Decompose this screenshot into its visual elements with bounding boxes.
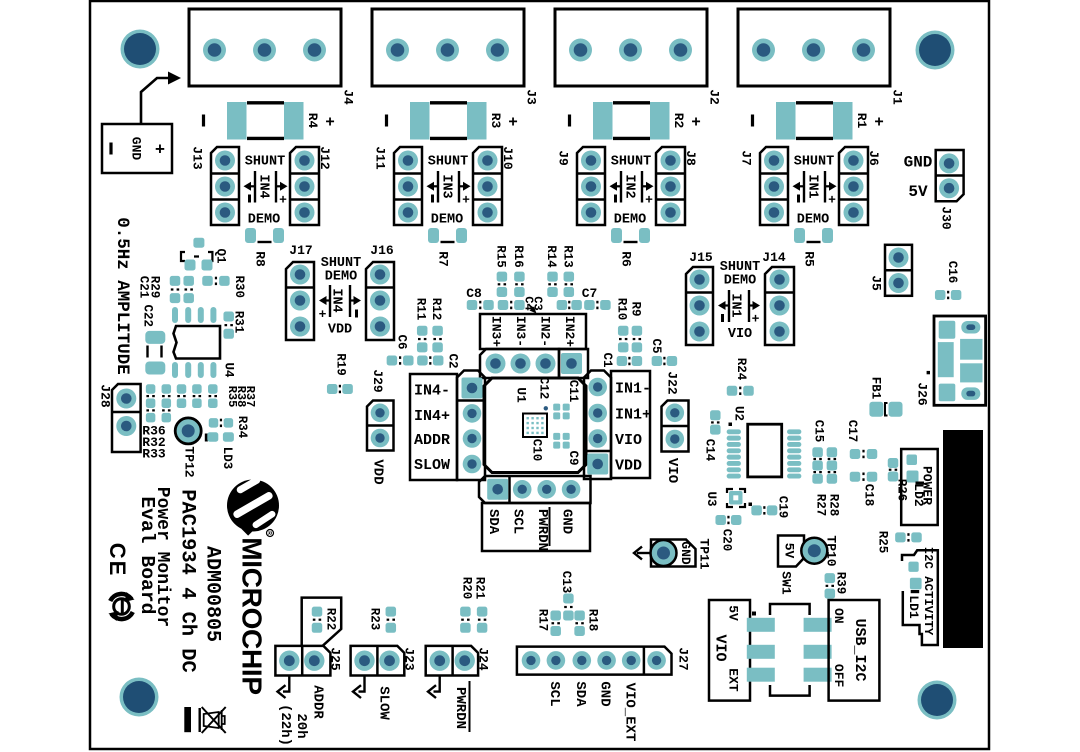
svg-text:C5: C5	[649, 338, 663, 353]
svg-text:ADDR: ADDR	[414, 432, 450, 449]
svg-text:LD2: LD2	[911, 483, 926, 507]
svg-text:SHUNT: SHUNT	[794, 154, 835, 169]
svg-text:U4: U4	[222, 362, 236, 378]
svg-text:C9: C9	[566, 450, 580, 465]
svg-text:C14: C14	[703, 439, 717, 462]
svg-text:VIO: VIO	[615, 432, 642, 449]
svg-text:J13: J13	[189, 146, 204, 170]
svg-text:R25: R25	[876, 531, 890, 554]
svg-text:J11: J11	[372, 146, 387, 170]
svg-text:J8: J8	[683, 150, 698, 166]
svg-text:+: +	[828, 193, 836, 208]
svg-text:VDD: VDD	[615, 457, 642, 474]
svg-text:J12: J12	[317, 146, 332, 170]
svg-text:0.5Hz AMPLITUDE: 0.5Hz AMPLITUDE	[112, 217, 132, 375]
svg-text:R13: R13	[560, 245, 574, 268]
svg-text:R10: R10	[615, 298, 629, 321]
svg-text:R19: R19	[333, 353, 347, 376]
svg-text:CE: CE	[105, 543, 130, 578]
svg-text:C18: C18	[862, 484, 876, 507]
svg-text:R31: R31	[232, 311, 246, 334]
svg-text:GND: GND	[128, 137, 143, 161]
svg-text:GND: GND	[558, 509, 574, 534]
svg-text:IN4-: IN4-	[414, 382, 450, 399]
svg-text:PWRDN: PWRDN	[534, 509, 550, 551]
svg-text:J26: J26	[915, 382, 930, 406]
svg-text:20h: 20h	[293, 713, 309, 738]
svg-text:SLOW: SLOW	[375, 686, 391, 720]
svg-text:C12: C12	[537, 377, 551, 400]
svg-text:VIO: VIO	[712, 634, 729, 661]
svg-text:(22h): (22h)	[277, 704, 293, 746]
svg-text:OFF: OFF	[831, 664, 846, 688]
svg-text:DEMO: DEMO	[431, 212, 463, 227]
svg-text:+: +	[462, 193, 470, 208]
svg-text:+: +	[645, 193, 653, 208]
svg-text:FB1: FB1	[869, 377, 883, 400]
svg-text:+: +	[691, 113, 701, 131]
svg-text:+: +	[752, 312, 760, 327]
svg-text:J24: J24	[475, 647, 490, 671]
svg-text:C10: C10	[530, 439, 544, 462]
svg-text:R7: R7	[435, 251, 450, 267]
svg-text:R2: R2	[671, 113, 686, 129]
svg-text:C16: C16	[945, 261, 959, 284]
svg-text:R18: R18	[586, 609, 600, 632]
svg-text:GND: GND	[904, 153, 933, 171]
svg-text:R12: R12	[429, 298, 443, 321]
svg-text:VDD: VDD	[370, 459, 386, 484]
svg-text:R39: R39	[834, 572, 848, 595]
svg-text:MICROCHIP: MICROCHIP	[236, 537, 267, 695]
svg-text:IN3+: IN3+	[488, 316, 503, 347]
svg-text:R15: R15	[493, 245, 507, 268]
svg-text:R33: R33	[142, 447, 166, 462]
svg-text:C19: C19	[776, 496, 790, 519]
svg-text:ADDR: ADDR	[310, 685, 326, 719]
svg-text:J14: J14	[762, 250, 786, 265]
svg-text:VIO_EXT: VIO_EXT	[622, 683, 638, 742]
svg-text:J7: J7	[738, 150, 753, 166]
svg-text:C1: C1	[600, 352, 614, 367]
svg-text:VIO: VIO	[664, 458, 680, 483]
svg-text:Eval Board: Eval Board	[136, 496, 158, 614]
svg-text:J29: J29	[370, 369, 385, 393]
svg-text:5V: 5V	[725, 605, 740, 621]
svg-text:J22: J22	[664, 371, 679, 395]
svg-text:C11: C11	[566, 380, 580, 403]
svg-text:PAC1934 4 Ch DC: PAC1934 4 Ch DC	[176, 489, 199, 673]
svg-text:C8: C8	[466, 286, 482, 301]
svg-text:SHUNT: SHUNT	[428, 154, 469, 169]
svg-text:C21: C21	[137, 276, 151, 299]
svg-text:+: +	[279, 193, 287, 208]
svg-text:C22: C22	[141, 305, 155, 328]
svg-text:R17: R17	[536, 609, 550, 632]
svg-text:C17: C17	[845, 420, 859, 443]
svg-text:IN4+: IN4+	[414, 408, 450, 425]
svg-text:+: +	[319, 307, 327, 322]
svg-text:+: +	[508, 113, 518, 131]
svg-text:IN1+: IN1+	[615, 406, 651, 423]
svg-text:J1: J1	[889, 89, 904, 105]
svg-text:+: +	[155, 142, 165, 161]
svg-text:IN2-: IN2-	[537, 316, 552, 347]
svg-text:DEMO: DEMO	[248, 212, 280, 227]
svg-text:+: +	[874, 113, 884, 131]
svg-text:IN3: IN3	[439, 174, 454, 198]
svg-text:R4: R4	[305, 113, 320, 129]
svg-text:J3: J3	[523, 89, 538, 105]
svg-text:R8: R8	[252, 251, 267, 267]
svg-text:ADM00805: ADM00805	[200, 546, 223, 642]
svg-text:J5: J5	[868, 275, 883, 291]
svg-text:J2: J2	[706, 89, 721, 105]
svg-text:J16: J16	[370, 243, 394, 258]
svg-text:I2C ACTIVITY: I2C ACTIVITY	[921, 547, 935, 636]
svg-text:DEMO: DEMO	[325, 269, 357, 284]
svg-text:R30: R30	[232, 275, 246, 298]
svg-text:SLOW: SLOW	[414, 457, 450, 474]
svg-text:J17: J17	[289, 243, 312, 258]
svg-text:+: +	[325, 113, 335, 131]
svg-text:J9: J9	[555, 150, 570, 166]
svg-text:LD3: LD3	[220, 447, 234, 470]
svg-text:C6: C6	[395, 334, 409, 349]
svg-text:R35: R35	[225, 386, 239, 408]
svg-text:5V: 5V	[781, 543, 796, 559]
svg-text:J27: J27	[675, 647, 690, 670]
svg-text:R5: R5	[801, 251, 816, 267]
svg-text:C2: C2	[446, 353, 460, 368]
svg-text:C7: C7	[582, 286, 598, 301]
svg-text:R22: R22	[323, 608, 337, 631]
svg-text:J30: J30	[938, 206, 953, 230]
svg-text:J28: J28	[97, 384, 112, 408]
svg-text:R24: R24	[734, 358, 748, 381]
svg-text:R6: R6	[618, 251, 633, 267]
svg-text:PWRDN: PWRDN	[452, 687, 468, 729]
svg-text:IN2: IN2	[622, 174, 637, 198]
svg-text:TP11: TP11	[696, 538, 711, 569]
svg-text:VIO: VIO	[728, 327, 752, 342]
svg-text:EXT: EXT	[725, 668, 740, 692]
svg-text:DEMO: DEMO	[614, 212, 646, 227]
svg-text:TP12: TP12	[181, 446, 196, 477]
svg-text:C15: C15	[812, 420, 826, 443]
svg-text:C13: C13	[559, 571, 573, 594]
svg-text:DEMO: DEMO	[797, 212, 829, 227]
svg-text:SCL: SCL	[546, 681, 562, 706]
svg-text:R23: R23	[368, 608, 382, 631]
svg-text:U1: U1	[513, 387, 528, 403]
svg-text:SHUNT: SHUNT	[611, 154, 652, 169]
svg-text:R9: R9	[628, 301, 642, 316]
svg-text:J10: J10	[500, 146, 515, 170]
svg-text:R16: R16	[511, 245, 525, 268]
svg-text:GND: GND	[597, 681, 613, 706]
svg-text:GND: GND	[678, 541, 693, 565]
svg-text:SCL: SCL	[509, 509, 525, 534]
svg-text:R11: R11	[414, 298, 428, 321]
svg-text:C20: C20	[719, 529, 733, 552]
svg-text:J15: J15	[689, 250, 713, 265]
svg-text:IN4: IN4	[256, 174, 271, 198]
svg-text:SDA: SDA	[572, 681, 588, 707]
svg-text:R34: R34	[235, 416, 249, 439]
svg-text:VDD: VDD	[328, 322, 352, 337]
svg-text:J4: J4	[340, 89, 355, 105]
svg-text:R28: R28	[827, 494, 841, 517]
svg-text:SDA: SDA	[485, 509, 501, 535]
svg-text:R21: R21	[473, 577, 487, 600]
svg-text:SHUNT: SHUNT	[245, 154, 286, 169]
svg-text:R27: R27	[814, 494, 828, 517]
svg-text:5V: 5V	[908, 183, 928, 201]
svg-text:ON: ON	[831, 608, 846, 624]
svg-text:IN3-: IN3-	[513, 316, 528, 347]
svg-text:R3: R3	[488, 113, 503, 129]
svg-text:U2: U2	[732, 406, 746, 421]
svg-text:R: R	[266, 531, 272, 535]
svg-text:SW1: SW1	[778, 571, 793, 595]
svg-text:TP10: TP10	[823, 535, 838, 566]
svg-text:U3: U3	[704, 491, 718, 506]
svg-text:IN2+: IN2+	[562, 316, 577, 347]
svg-text:R20: R20	[460, 577, 474, 600]
svg-text:R1: R1	[854, 113, 869, 129]
svg-text:J25: J25	[327, 647, 342, 671]
svg-text:R14: R14	[544, 245, 558, 268]
svg-text:J6: J6	[866, 150, 881, 166]
svg-text:J23: J23	[401, 647, 416, 671]
svg-text:IN1-: IN1-	[615, 380, 651, 397]
svg-text:USB_I2C: USB_I2C	[851, 618, 868, 681]
svg-text:DEMO: DEMO	[724, 273, 756, 288]
svg-text:Q1: Q1	[214, 248, 228, 263]
svg-text:IN1: IN1	[805, 174, 820, 198]
svg-text:LD1: LD1	[906, 595, 921, 619]
